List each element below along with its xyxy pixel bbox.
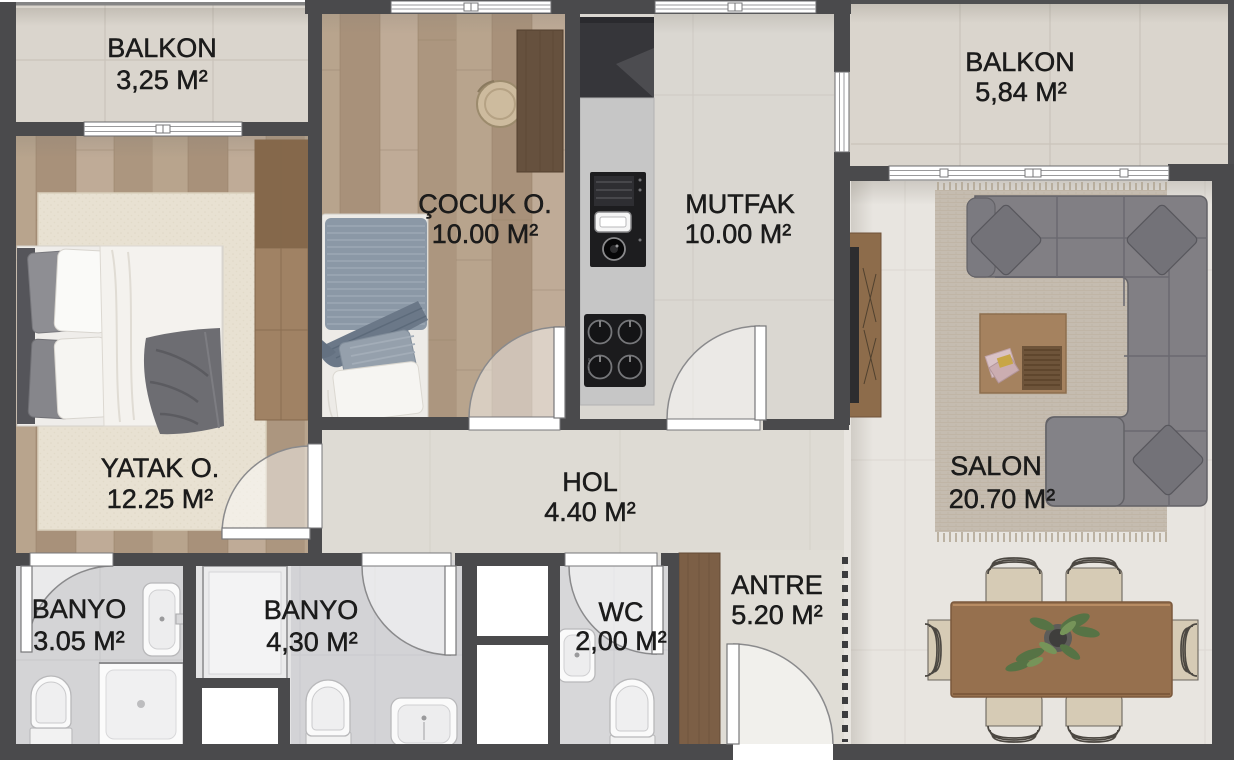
svg-text:4.40 M²: 4.40 M² — [544, 497, 636, 527]
svg-text:5,84 M²: 5,84 M² — [975, 77, 1067, 107]
svg-text:3,25 M²: 3,25 M² — [116, 65, 208, 95]
svg-text:5.20 M²: 5.20 M² — [731, 600, 823, 630]
svg-text:BALKON: BALKON — [965, 47, 1075, 77]
svg-text:BANYO: BANYO — [32, 594, 127, 624]
svg-text:BANYO: BANYO — [264, 595, 359, 625]
svg-text:ÇOCUK O.: ÇOCUK O. — [418, 189, 552, 219]
svg-text:WC: WC — [599, 597, 644, 627]
svg-text:MUTFAK: MUTFAK — [685, 189, 795, 219]
svg-text:BALKON: BALKON — [107, 33, 217, 63]
svg-text:2,00 M²: 2,00 M² — [575, 626, 667, 656]
svg-text:10.00 M²: 10.00 M² — [685, 219, 792, 249]
svg-text:3.05 M²: 3.05 M² — [33, 626, 125, 656]
svg-text:ANTRE: ANTRE — [731, 570, 823, 600]
svg-text:HOL: HOL — [562, 467, 618, 497]
svg-text:12.25 M²: 12.25 M² — [107, 484, 214, 514]
svg-text:4,30 M²: 4,30 M² — [266, 627, 358, 657]
svg-text:SALON: SALON — [950, 451, 1042, 481]
svg-text:10.00 M²: 10.00 M² — [432, 219, 539, 249]
svg-text:YATAK O.: YATAK O. — [101, 453, 220, 483]
svg-text:20.70 M²: 20.70 M² — [949, 484, 1056, 514]
